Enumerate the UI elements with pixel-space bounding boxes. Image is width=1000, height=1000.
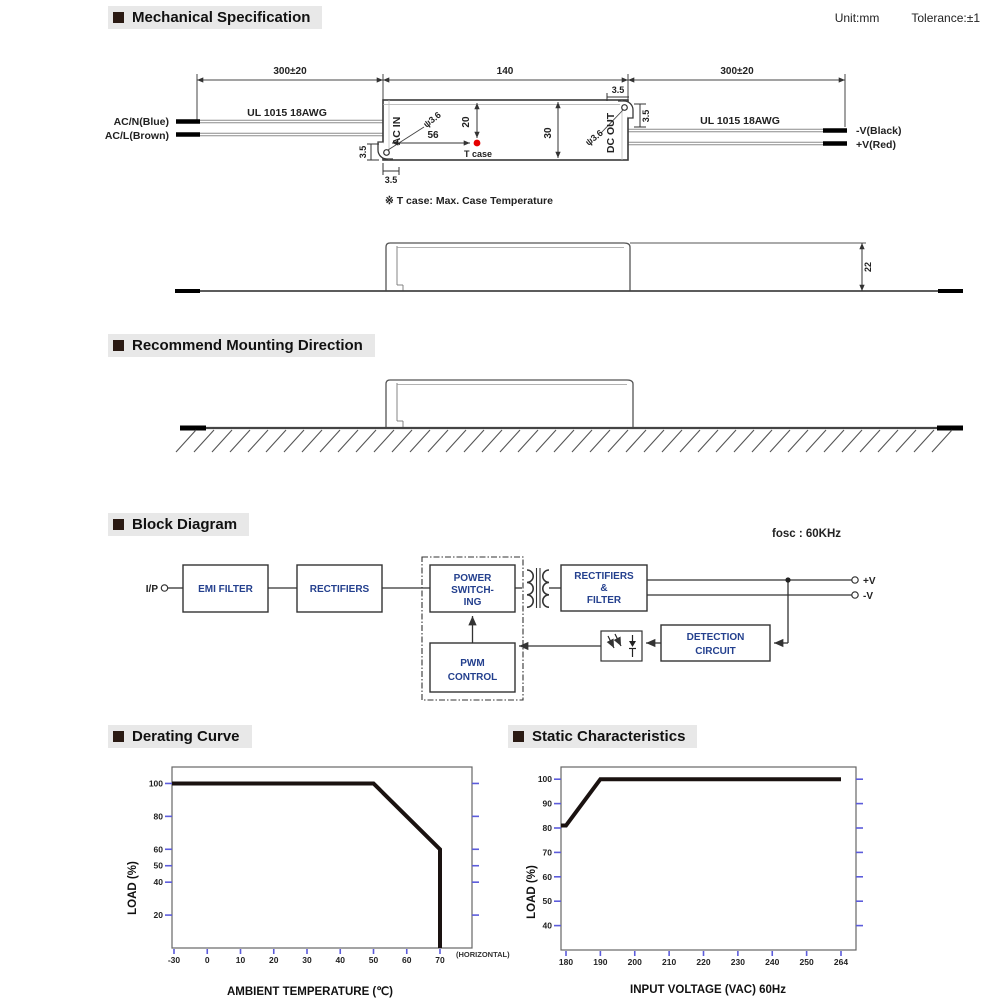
dim-case-height: 30: [543, 127, 554, 139]
svg-text:80: 80: [543, 823, 553, 833]
pwm-control-label-1: PWM: [460, 658, 484, 669]
derating-curve-chart: 2040506080100-30010203040506070: [110, 760, 520, 972]
input-wires: [176, 122, 383, 135]
svg-text:240: 240: [765, 957, 779, 967]
wire-label-vplus: +V(Red): [856, 139, 896, 151]
fosc-label: fosc : 60KHz: [772, 528, 841, 540]
square-bullet-icon: [113, 340, 124, 351]
square-bullet-icon: [113, 12, 124, 23]
svg-text:220: 220: [696, 957, 710, 967]
svg-text:230: 230: [731, 957, 745, 967]
svg-text:60: 60: [402, 955, 412, 965]
tolerance-note: Tolerance:±1: [911, 11, 980, 25]
svg-text:40: 40: [336, 955, 346, 965]
svg-text:0: 0: [205, 955, 210, 965]
svg-text:50: 50: [543, 896, 553, 906]
svg-text:20: 20: [269, 955, 279, 965]
mounted-case: [386, 380, 633, 428]
svg-text:250: 250: [800, 957, 814, 967]
tcase-label: T case: [464, 149, 492, 159]
svg-text:210: 210: [662, 957, 676, 967]
svg-text:180: 180: [559, 957, 573, 967]
section-title: Recommend Mounting Direction: [132, 337, 363, 354]
svg-text:-30: -30: [168, 955, 181, 965]
section-block-diagram: Block Diagram: [108, 513, 249, 536]
svg-text:100: 100: [149, 778, 163, 788]
input-terminal-icon: [161, 585, 167, 591]
output-wires: [628, 131, 847, 144]
section-mechanical-specification: Mechanical Specification: [108, 6, 322, 29]
rect-filter-label-1: RECTIFIERS: [574, 571, 634, 582]
svg-text:70: 70: [543, 847, 553, 857]
rect-filter-label-2: &: [600, 583, 607, 594]
svg-text:20: 20: [154, 910, 164, 920]
unit-tolerance-note: Unit:mm Tolerance:±1: [690, 11, 980, 25]
svg-text:50: 50: [369, 955, 379, 965]
section-title: Derating Curve: [132, 728, 240, 745]
square-bullet-icon: [513, 731, 524, 742]
power-switching-label-1: POWER: [454, 573, 493, 584]
dim-case-length: 140: [497, 66, 514, 77]
tcase-note: ※ T case: Max. Case Temperature: [385, 195, 553, 207]
dim-left-wire-length: 300±20: [273, 66, 307, 77]
wire-label-acl: AC/L(Brown): [105, 130, 169, 142]
junction-dot: [785, 577, 790, 582]
vminus-terminal-icon: [852, 592, 858, 598]
svg-text:70: 70: [435, 955, 445, 965]
dim-ear-left-v: 3.5: [358, 146, 368, 159]
derating-y-axis-title: LOAD (%): [127, 828, 139, 948]
svg-text:60: 60: [543, 872, 553, 882]
static-x-axis-title: INPUT VOLTAGE (VAC) 60Hz: [578, 984, 838, 996]
pwm-control-label-2: CONTROL: [448, 672, 497, 683]
dim-tcase-offset-y: 20: [461, 116, 472, 128]
rect-filter-label-3: FILTER: [587, 595, 622, 606]
dim-ear-right-h: 3.5: [612, 85, 625, 95]
dim-tcase-offset-x: 56: [427, 130, 439, 141]
rectifiers-label: RECTIFIERS: [310, 584, 370, 595]
vplus-terminal-icon: [852, 577, 858, 583]
detection-circuit-label-2: CIRCUIT: [695, 646, 736, 657]
ground-surface: [176, 428, 963, 452]
ac-in-label: AC IN: [391, 117, 403, 146]
svg-text:80: 80: [154, 811, 164, 821]
svg-text:60: 60: [154, 844, 164, 854]
dim-case-thickness: 22: [863, 262, 873, 272]
side-profile-view: 22: [170, 238, 970, 300]
wire-type-right: UL 1015 18AWG: [700, 115, 780, 127]
derating-x-axis-title: AMBIENT TEMPERATURE (℃): [180, 984, 440, 998]
transformer-symbol: [527, 568, 549, 608]
unit-note: Unit:mm: [835, 11, 880, 25]
svg-text:264: 264: [834, 957, 848, 967]
static-characteristics-chart: 4050607080901001801902002102202302402502…: [500, 760, 890, 972]
block-diagram: I/P EMI FILTER RECTIFIERS POWER SWITCH- …: [130, 550, 890, 710]
power-switching-label-2: SWITCH-: [451, 585, 494, 596]
svg-text:100: 100: [538, 774, 552, 784]
mounting-direction-view: [170, 368, 970, 460]
section-title: Mechanical Specification: [132, 9, 310, 26]
svg-text:30: 30: [302, 955, 312, 965]
static-y-axis-title: LOAD (%): [526, 832, 538, 952]
svg-text:190: 190: [593, 957, 607, 967]
svg-text:10: 10: [236, 955, 246, 965]
power-switching-label-3: ING: [464, 597, 482, 608]
wire-type-left: UL 1015 18AWG: [247, 107, 327, 119]
side-profile-lines: [175, 243, 963, 291]
detection-circuit-label-1: DETECTION: [687, 632, 745, 643]
emi-filter-label: EMI FILTER: [198, 584, 254, 595]
dim-ear-left-h: 3.5: [385, 175, 398, 185]
square-bullet-icon: [113, 519, 124, 530]
svg-text:40: 40: [543, 921, 553, 931]
svg-text:200: 200: [628, 957, 642, 967]
dim-ear-right-v: 3.5: [641, 110, 651, 123]
dim-right-wire-length: 300±20: [720, 66, 754, 77]
wire-label-acn: AC/N(Blue): [114, 116, 169, 128]
svg-text:40: 40: [154, 877, 164, 887]
square-bullet-icon: [113, 731, 124, 742]
dc-out-label: DC OUT: [605, 112, 617, 153]
svg-text:90: 90: [543, 799, 553, 809]
input-terminal-label: I/P: [146, 584, 159, 595]
tcase-dot: [474, 140, 481, 147]
section-title: Block Diagram: [132, 516, 237, 533]
vplus-terminal-label: +V: [863, 576, 876, 587]
section-derating-curve: Derating Curve: [108, 725, 252, 748]
vminus-terminal-label: -V: [863, 591, 873, 602]
section-mounting-direction: Recommend Mounting Direction: [108, 334, 375, 357]
section-static-characteristics: Static Characteristics: [508, 725, 697, 748]
section-title: Static Characteristics: [532, 728, 685, 745]
wire-label-vminus: -V(Black): [856, 125, 902, 137]
svg-text:50: 50: [154, 861, 164, 871]
horizontal-annotation: (HORIZONTAL): [456, 950, 510, 959]
